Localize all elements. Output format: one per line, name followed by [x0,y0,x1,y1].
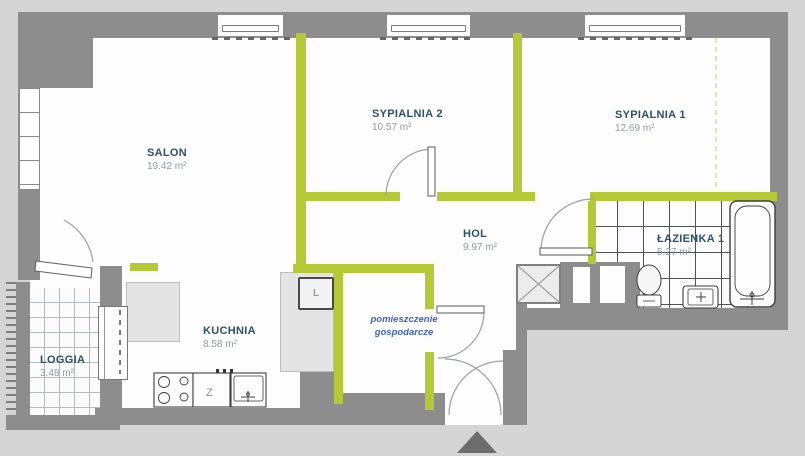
partition-wall [590,192,777,201]
window-sill [589,25,681,32]
wall-niche [573,267,590,303]
room-area: 9.97 m² [463,242,497,255]
window-dash-line [578,37,692,40]
partition-wall [588,201,596,264]
room-label-bathroom: ŁAZIENKA 1 5.27 m² [657,233,724,259]
room-name: ŁAZIENKA 1 [657,233,724,247]
partition-wall [296,33,306,265]
room-name: LOGGIA [40,354,85,368]
loggia-wall [6,415,120,430]
entrance-arrow-icon [457,431,497,453]
window [218,15,283,36]
partition-wall [130,263,158,271]
room-label-bedroom1: SYPIALNIA 1 12.69 m² [615,109,686,135]
room-label-kitchen: KUCHNIA 8.58 m² [203,325,256,351]
utility-label-line1: pomieszczenie [348,313,460,326]
room-name: SYPIALNIA 1 [615,109,686,123]
window-dash-line [380,37,476,40]
partition-wall [334,264,343,404]
room-area: 12.69 m² [615,123,686,136]
ventilation-shaft [516,264,561,304]
window [585,15,685,36]
loggia-railing [6,282,16,415]
partition-wall [425,264,434,309]
room-area: 3.48 m² [40,368,85,381]
wall-segment [503,350,527,425]
fridge: L [298,277,334,310]
room-name: KUCHNIA [203,325,256,339]
entrance-opening [445,400,503,425]
partition-wall [293,264,433,273]
utility-label-line2: gospodarcze [348,326,460,339]
room-name: HOL [463,228,497,242]
wall-segment [100,266,122,306]
wall-segment [770,12,788,330]
room-label-bedroom2: SYPIALNIA 2 10.57 m² [372,108,443,134]
window-sill [391,25,466,32]
wall-niche [600,266,625,303]
room-label-loggia: LOGGIA 3.48 m² [40,354,85,380]
room-label-salon: SALON 19.42 m² [147,147,187,173]
window [387,15,470,36]
partition-wall [300,192,400,201]
loggia-wall [16,282,30,428]
kitchen-counter [126,282,180,342]
wall-segment [527,308,788,330]
partition-wall [437,192,535,201]
window [19,88,40,190]
window-dash-line [119,310,121,374]
window-dash-line [212,37,290,40]
kitchen-window [98,306,128,380]
wall-segment [40,12,93,88]
fridge-label: L [313,288,319,299]
window-sill [222,25,279,32]
partition-wall [513,33,522,197]
room-label-utility: pomieszczenie gospodarcze [348,313,460,340]
room-area: 8.58 m² [203,339,256,352]
floor-plan: L [0,0,805,456]
window-frame-line [104,307,105,379]
room-area: 19.42 m² [147,161,187,174]
room-name: SYPIALNIA 2 [372,108,443,122]
room-name: SALON [147,147,187,161]
room-area: 10.57 m² [372,122,443,135]
loggia-tiles [30,288,100,415]
partition-wall [425,352,434,410]
wall-segment [100,378,122,415]
wall-segment [300,372,338,408]
room-label-hall: HOL 9.97 m² [463,228,497,254]
wall-segment [516,302,527,352]
room-area: 5.27 m² [657,247,724,260]
